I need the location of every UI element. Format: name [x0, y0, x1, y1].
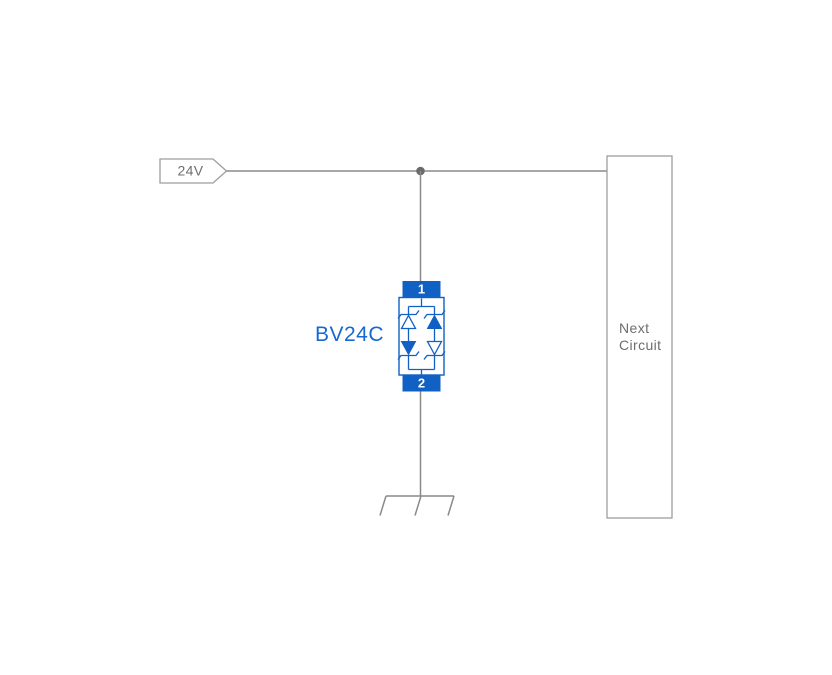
next-circuit-label-line1: Next: [619, 320, 649, 336]
circuit-diagram: 24V 1: [0, 0, 832, 675]
ground-hatch-lines: [380, 496, 454, 516]
component-bv24c: 1 2: [398, 281, 445, 392]
ground-symbol: [380, 496, 454, 516]
pin-1-label: 1: [418, 282, 425, 297]
net-label-24v: 24V: [160, 159, 227, 183]
schematic-canvas: 24V 1: [0, 0, 832, 675]
pin-2-label: 2: [418, 376, 425, 391]
next-circuit-label-line2: Circuit: [619, 337, 661, 353]
net-label-24v-text: 24V: [177, 163, 203, 179]
next-circuit: Next Circuit: [607, 156, 672, 518]
component-body: [399, 298, 444, 376]
component-name-label: BV24C: [315, 323, 384, 346]
